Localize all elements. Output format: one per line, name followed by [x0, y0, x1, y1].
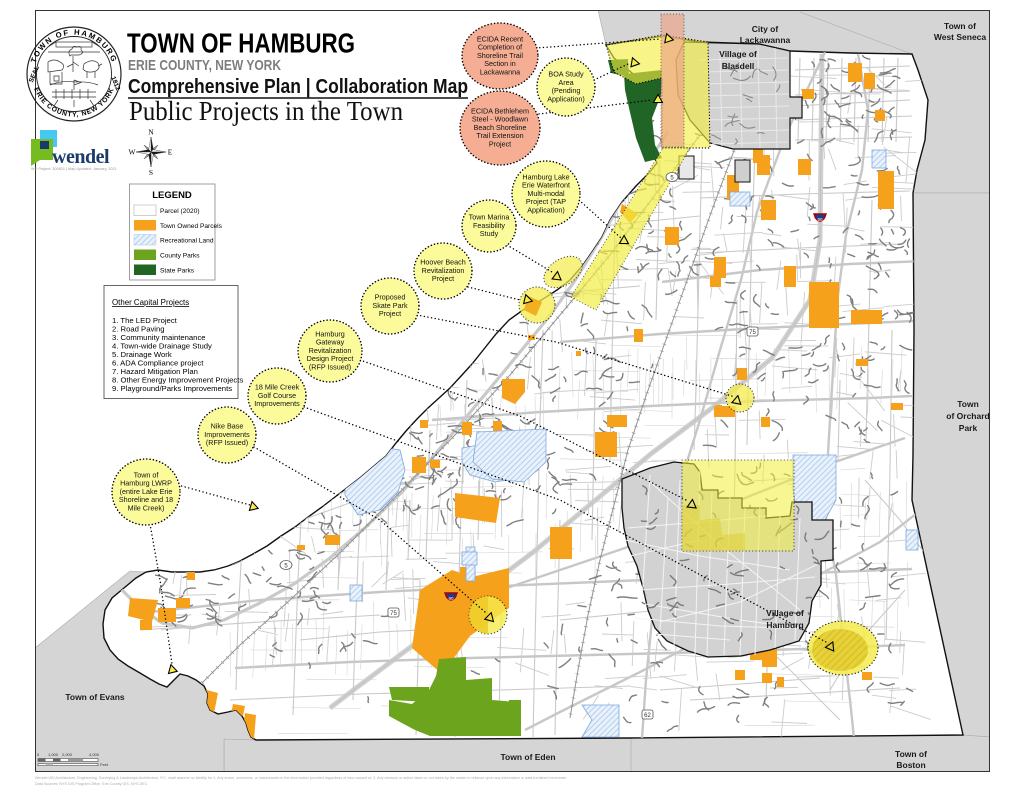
svg-text:TOWN OF HAMBURG: TOWN OF HAMBURG	[127, 28, 355, 59]
svg-text:Project: Project	[432, 274, 454, 283]
svg-text:Village of: Village of	[719, 49, 757, 59]
svg-text:75: 75	[749, 330, 756, 336]
svg-text:City of: City of	[752, 24, 779, 34]
svg-text:75: 75	[390, 611, 397, 617]
svg-text:Other Capital Projects: Other Capital Projects	[112, 298, 189, 307]
svg-text:S: S	[149, 168, 153, 177]
svg-text:Feet: Feet	[100, 762, 109, 767]
svg-text:W: W	[128, 148, 136, 157]
svg-text:Boston: Boston	[896, 760, 925, 770]
svg-text:(RFP Issued): (RFP Issued)	[206, 438, 248, 447]
svg-text:Town of Evans: Town of Evans	[65, 692, 125, 702]
svg-text:(RFP Issued): (RFP Issued)	[309, 363, 351, 372]
svg-text:4,000: 4,000	[89, 752, 100, 757]
svg-text:Lackawanna: Lackawanna	[480, 68, 520, 77]
svg-text:LEGEND: LEGEND	[152, 190, 192, 201]
svg-text:N: N	[148, 128, 154, 137]
svg-text:Application): Application)	[547, 94, 585, 103]
svg-text:Data Sources: NYS GIS Program: Data Sources: NYS GIS Program Office, Er…	[35, 782, 148, 786]
svg-text:Town of: Town of	[895, 749, 927, 759]
svg-text:Lackawanna: Lackawanna	[740, 35, 791, 45]
svg-text:West Seneca: West Seneca	[934, 32, 987, 42]
svg-text:90: 90	[448, 596, 454, 601]
svg-text:Park: Park	[959, 423, 978, 433]
svg-text:WD Project: 300821 | Map Updat: WD Project: 300821 | Map Updated: Januar…	[31, 167, 117, 171]
svg-text:Town of: Town of	[944, 21, 976, 31]
svg-text:Mile Creek): Mile Creek)	[128, 504, 165, 513]
svg-text:Town: Town	[957, 399, 979, 409]
svg-text:Study: Study	[480, 229, 499, 238]
svg-text:Application): Application)	[527, 206, 565, 215]
svg-text:90: 90	[817, 217, 823, 222]
svg-text:Project: Project	[379, 309, 401, 318]
svg-text:Improvements: Improvements	[254, 399, 300, 408]
svg-text:Town Owned Parcels: Town Owned Parcels	[160, 223, 223, 230]
svg-text:Hamburg: Hamburg	[766, 620, 803, 630]
svg-text:Village of: Village of	[766, 608, 804, 618]
svg-text:62: 62	[644, 713, 651, 719]
svg-text:1,000: 1,000	[48, 752, 59, 757]
svg-text:County Parks: County Parks	[160, 253, 200, 260]
svg-text:ERIE COUNTY, NEW YORK: ERIE COUNTY, NEW YORK	[128, 57, 281, 74]
svg-text:Recreational Land: Recreational Land	[160, 238, 214, 245]
svg-text:wendel: wendel	[52, 146, 110, 168]
svg-text:Project: Project	[489, 140, 511, 149]
svg-text:Wendel WD Architecture, Engine: Wendel WD Architecture, Engineering, Sur…	[35, 776, 567, 780]
svg-text:2,000: 2,000	[62, 752, 73, 757]
svg-text:Blasdell: Blasdell	[722, 61, 755, 71]
svg-text:of Orchard: of Orchard	[946, 411, 989, 421]
svg-text:Town of Eden: Town of Eden	[500, 752, 555, 762]
svg-text:E: E	[168, 148, 173, 157]
svg-text:State Parks: State Parks	[160, 268, 195, 275]
svg-text:9. Playground/Parks Improveme: 9. Playground/Parks Improvements	[112, 384, 232, 393]
svg-text:Public Projects in the Town: Public Projects in the Town	[129, 95, 403, 126]
svg-text:Parcel (2020): Parcel (2020)	[160, 208, 200, 215]
